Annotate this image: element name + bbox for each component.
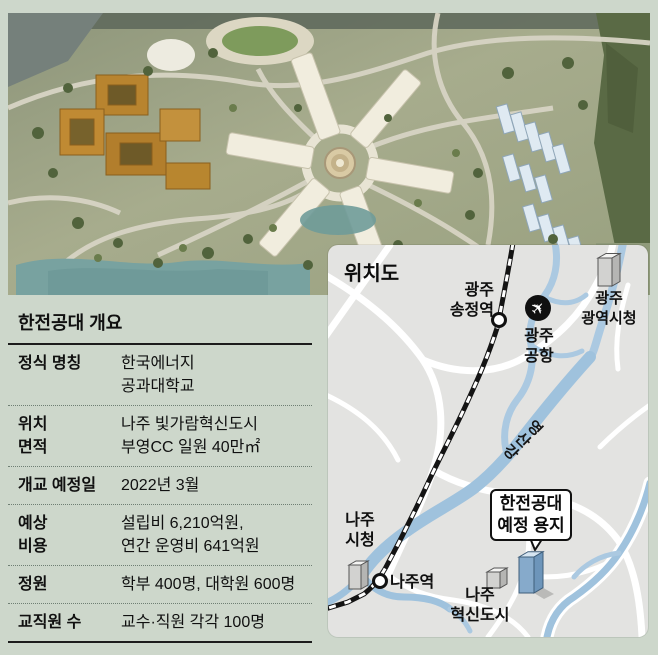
airplane-glyph: ✈	[527, 297, 549, 319]
songjeong-station-marker-icon	[493, 314, 506, 327]
innovation-city-building-icon	[487, 568, 507, 588]
gwangju-cityhall-building-icon	[598, 254, 620, 287]
label-naju-station: 나주역	[390, 573, 434, 593]
row-value: 설립비 6,210억원, 연간 운영비 641억원	[121, 512, 312, 558]
kepco-site-callout: 한전공대 예정 용지	[490, 489, 572, 541]
news-infographic: 한전공대 개요 정식 명칭 한국에너지 공과대학교 위치 면적 나주 빛가람혁신…	[0, 0, 658, 655]
table-row: 교직원 수 교수·직원 각각 100명	[8, 604, 312, 643]
table-row: 정원 학부 400명, 대학원 600명	[8, 566, 312, 604]
location-map: 위치도 광주 송정역 ✈ 광주 공항 광주 광역시청 영산강 나주 시청 나주역…	[328, 245, 648, 637]
label-naju-cityhall: 나주 시청	[338, 511, 382, 551]
naju-cityhall-building-icon	[349, 561, 368, 589]
naju-station-marker-icon	[374, 575, 387, 588]
row-value: 한국에너지 공과대학교	[121, 352, 312, 398]
row-label: 정원	[18, 573, 121, 596]
table-row: 예상 비용 설립비 6,210억원, 연간 운영비 641억원	[8, 505, 312, 566]
row-label: 정식 명칭	[18, 352, 121, 398]
label-gwangju-metropolitan-cityhall: 광주 광역시청	[572, 289, 646, 329]
row-value: 나주 빛가람혁신도시 부영CC 일원 40만㎡	[121, 413, 312, 459]
row-value: 교수·직원 각각 100명	[121, 611, 312, 634]
row-value: 학부 400명, 대학원 600명	[121, 573, 312, 596]
label-gwangju-songjeong-station: 광주 송정역	[428, 281, 494, 321]
label-naju-innovation-city: 나주 혁신도시	[445, 586, 515, 626]
label-gwangju-airport: 광주 공항	[514, 327, 564, 367]
table-row: 위치 면적 나주 빛가람혁신도시 부영CC 일원 40만㎡	[8, 406, 312, 467]
row-label: 개교 예정일	[18, 474, 121, 497]
table-row: 정식 명칭 한국에너지 공과대학교	[8, 345, 312, 406]
map-title: 위치도	[344, 257, 399, 286]
row-label: 교직원 수	[18, 611, 121, 634]
table-row: 개교 예정일 2022년 3월	[8, 467, 312, 505]
row-label: 예상 비용	[18, 512, 121, 558]
overview-table: 한전공대 개요 정식 명칭 한국에너지 공과대학교 위치 면적 나주 빛가람혁신…	[8, 305, 312, 643]
row-label: 위치 면적	[18, 413, 121, 459]
row-value: 2022년 3월	[121, 474, 312, 497]
airport-icon: ✈	[525, 295, 551, 321]
overview-title: 한전공대 개요	[8, 305, 312, 345]
